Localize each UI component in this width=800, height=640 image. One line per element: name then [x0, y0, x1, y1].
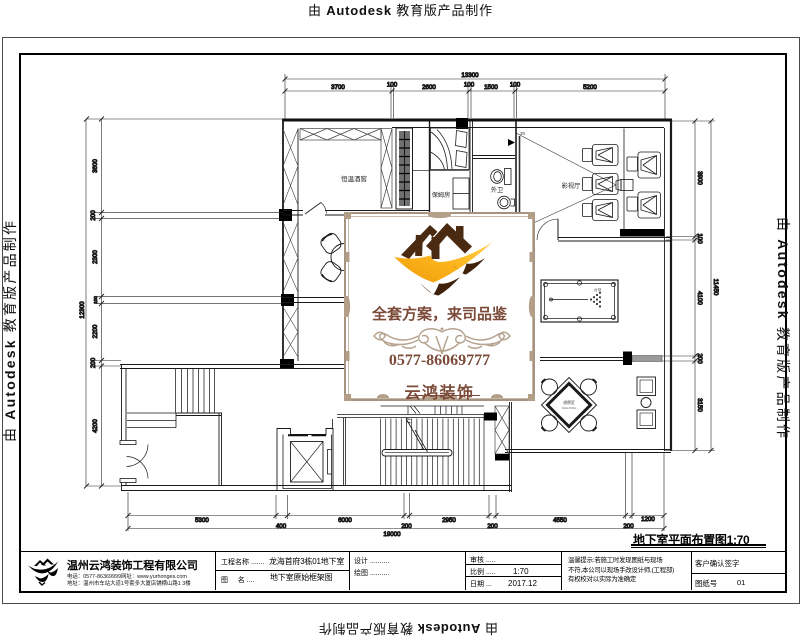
svg-text:3600: 3600 — [92, 159, 99, 173]
svg-text:6000: 6000 — [338, 517, 352, 524]
svg-text:100: 100 — [696, 233, 703, 244]
svg-text:400: 400 — [276, 523, 287, 530]
svg-text:5200: 5200 — [583, 84, 597, 91]
svg-text:影视厅: 影视厅 — [562, 182, 581, 190]
svg-text:200: 200 — [623, 523, 634, 530]
svg-text:4100: 4100 — [696, 291, 703, 305]
svg-text:100: 100 — [510, 82, 521, 89]
svg-text:棋牌室: 棋牌室 — [563, 400, 575, 405]
svg-text:5300: 5300 — [195, 517, 209, 524]
svg-text:3150: 3150 — [696, 398, 703, 412]
svg-text:3700: 3700 — [331, 84, 345, 91]
svg-text:保姆房: 保姆房 — [432, 191, 451, 199]
svg-text:12300: 12300 — [79, 301, 86, 319]
svg-text:3900: 3900 — [696, 171, 703, 185]
svg-text:1500: 1500 — [484, 84, 498, 91]
svg-text:外卫: 外卫 — [491, 186, 503, 194]
svg-text:200: 200 — [90, 210, 97, 221]
svg-text:恒温酒窖: 恒温酒窖 — [341, 174, 368, 183]
svg-text:200: 200 — [401, 523, 412, 530]
svg-text:4200: 4200 — [92, 419, 99, 433]
svg-text:2600: 2600 — [422, 84, 436, 91]
svg-text:MAHJONG: MAHJONG — [562, 406, 576, 410]
svg-text:1200: 1200 — [641, 516, 655, 523]
svg-text:4550: 4550 — [553, 517, 567, 524]
svg-text:200: 200 — [90, 357, 97, 368]
svg-text:11450: 11450 — [712, 279, 719, 296]
svg-text:200: 200 — [696, 353, 703, 364]
svg-text:200: 200 — [487, 523, 498, 530]
svg-text:台球: 台球 — [594, 287, 602, 292]
svg-text:13300: 13300 — [461, 72, 479, 79]
svg-text:2300: 2300 — [92, 250, 99, 264]
svg-text:2950: 2950 — [442, 517, 456, 524]
svg-text:2200: 2200 — [92, 324, 99, 338]
svg-text:19000: 19000 — [383, 531, 401, 538]
svg-text:100: 100 — [464, 82, 475, 89]
svg-text:100: 100 — [387, 82, 398, 89]
svg-text:100: 100 — [93, 296, 98, 304]
